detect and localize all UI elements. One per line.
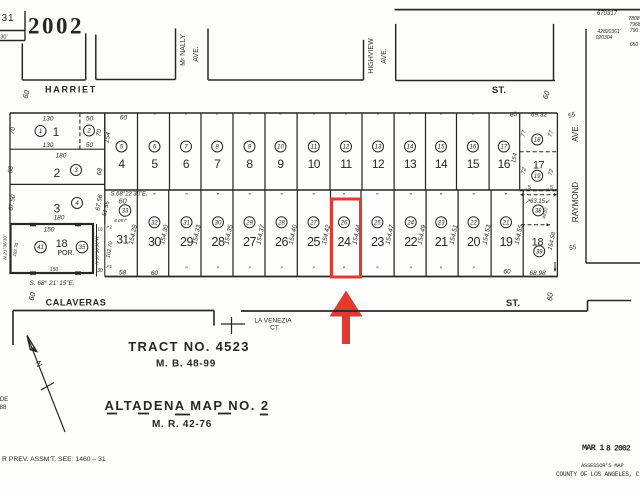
svg-text:77: 77: [521, 129, 529, 138]
svg-text:”: ”: [410, 267, 413, 274]
svg-text:”: ”: [280, 267, 283, 274]
svg-text:9: 9: [248, 145, 252, 151]
svg-text:29: 29: [245, 220, 253, 226]
svg-text:R PREV. ASSM’T. SEE: 1460 –: R PREV. ASSM’T. SEE: 1460 – 31: [2, 456, 106, 463]
svg-text:18: 18: [534, 138, 541, 144]
svg-text:55: 55: [569, 244, 578, 252]
svg-text:↗2: ↗2: [106, 225, 113, 230]
svg-text:58: 58: [119, 270, 127, 277]
svg-text:88: 88: [0, 405, 7, 411]
svg-text:15: 15: [467, 157, 480, 171]
svg-text:S.68°22’30”E.: S.68°22’30”E.: [110, 191, 147, 197]
svg-text:CT.: CT.: [270, 325, 280, 332]
svg-text:”: ”: [217, 267, 220, 274]
svg-text:33: 33: [122, 209, 129, 215]
svg-text:21: 21: [435, 235, 448, 249]
svg-text:”: ”: [440, 113, 443, 120]
svg-text:”: ”: [409, 113, 412, 120]
svg-text:30’: 30’: [0, 35, 7, 41]
svg-text:69.32: 69.32: [531, 112, 548, 119]
svg-text:13: 13: [375, 145, 382, 151]
svg-text:19: 19: [534, 174, 541, 180]
svg-text:180: 180: [56, 153, 67, 160]
svg-text:”: ”: [472, 267, 475, 274]
svg-text:POR.: POR.: [57, 250, 74, 257]
svg-text:7: 7: [184, 145, 188, 151]
svg-text:16: 16: [470, 145, 477, 151]
svg-text:60: 60: [118, 197, 127, 206]
svg-text:39: 39: [536, 249, 543, 255]
svg-text:8.05’/”: 8.05’/”: [114, 218, 127, 223]
svg-text:26: 26: [275, 235, 288, 249]
svg-text:154: 154: [104, 131, 113, 143]
svg-text:9: 9: [277, 157, 284, 171]
svg-text:28: 28: [277, 220, 285, 226]
svg-text:RAYMOND: RAYMOND: [571, 182, 580, 223]
svg-text:”: ”: [248, 113, 251, 120]
svg-text:21: 21: [502, 220, 510, 226]
svg-text:1: 1: [53, 125, 60, 139]
svg-text:60: 60: [120, 115, 128, 122]
svg-text:N.10°36’30”W.: N.10°36’30”W.: [95, 235, 100, 264]
svg-text:72: 72: [521, 167, 529, 176]
svg-text:60: 60: [503, 269, 511, 276]
svg-text:DE: DE: [0, 397, 8, 403]
svg-text:60: 60: [151, 270, 159, 277]
svg-text:”: ”: [312, 193, 315, 200]
svg-text:22: 22: [469, 220, 477, 226]
svg-text:130: 130: [43, 142, 54, 149]
svg-text:48.67: 48.67: [541, 207, 549, 220]
svg-text:3: 3: [74, 168, 78, 174]
svg-text:77: 77: [548, 129, 556, 138]
svg-text:20: 20: [467, 235, 480, 249]
svg-text:27: 27: [243, 235, 256, 249]
svg-text:31: 31: [116, 233, 129, 247]
svg-text:60: 60: [509, 111, 518, 119]
svg-text:”: ”: [343, 267, 346, 274]
svg-text:”: ”: [472, 193, 475, 200]
svg-text:”: ”: [280, 193, 283, 200]
svg-text:N: N: [33, 359, 44, 369]
svg-text:”: ”: [377, 113, 380, 120]
svg-text:8 2002: 8 2002: [606, 445, 631, 454]
svg-text:60: 60: [27, 290, 38, 301]
svg-text:AVE.: AVE.: [571, 124, 580, 142]
svg-text:”: ”: [345, 113, 348, 120]
svg-text:7: 7: [214, 157, 221, 171]
svg-text:102.70: 102.70: [106, 240, 115, 259]
svg-text:”: ”: [217, 193, 220, 200]
svg-text:4: 4: [75, 201, 79, 207]
svg-text:6: 6: [153, 145, 157, 151]
svg-text:↗2: ↗2: [106, 264, 113, 269]
svg-text:”: ”: [248, 267, 251, 274]
svg-text:”: ”: [153, 193, 156, 200]
svg-text:”: ”: [153, 113, 156, 120]
svg-text:8: 8: [216, 145, 220, 151]
svg-text:”: ”: [472, 113, 475, 120]
svg-text:68: 68: [7, 165, 15, 174]
svg-text:MAR 1: MAR 1: [582, 443, 604, 453]
svg-text:HIGHVIEW: HIGHVIEW: [368, 38, 375, 74]
svg-text:154: 154: [511, 152, 519, 164]
svg-text:020304: 020304: [596, 35, 613, 41]
svg-text:180: 180: [54, 215, 65, 222]
svg-text:14: 14: [407, 145, 414, 151]
svg-text:51.56: 51.56: [102, 200, 111, 217]
svg-text:ST.: ST.: [492, 85, 506, 96]
svg-text:HARRIET: HARRIET: [45, 85, 97, 95]
svg-text:”: ”: [312, 267, 315, 274]
svg-text:”: ”: [505, 193, 508, 200]
svg-text:ASSESSOR’S MAP: ASSESSOR’S MAP: [581, 463, 624, 469]
svg-text:12: 12: [372, 157, 385, 171]
svg-text:50: 50: [86, 142, 94, 149]
svg-text:10: 10: [97, 227, 103, 232]
svg-text:”: ”: [410, 193, 413, 200]
svg-text:16: 16: [498, 157, 511, 171]
svg-text:60: 60: [21, 88, 32, 99]
svg-text:TRACT NO. 4523: TRACT NO. 4523: [128, 339, 250, 354]
svg-text:17: 17: [500, 145, 507, 151]
svg-text:LA VENEZIA: LA VENEZIA: [254, 318, 292, 325]
svg-text:”: ”: [279, 113, 282, 120]
svg-text:150: 150: [50, 267, 59, 273]
svg-text:19: 19: [500, 235, 513, 249]
svg-text:55: 55: [567, 111, 576, 120]
svg-text:AVE.: AVE.: [381, 48, 388, 63]
svg-text:670317: 670317: [597, 11, 618, 17]
svg-text:24: 24: [338, 235, 351, 249]
svg-text:68.98: 68.98: [529, 270, 546, 277]
svg-text:”: ”: [185, 193, 188, 200]
svg-text:→5: →5: [545, 185, 553, 191]
svg-text:15: 15: [438, 145, 445, 151]
svg-text:25: 25: [307, 235, 320, 249]
svg-text:”: ”: [185, 267, 188, 274]
svg-text:2002: 2002: [28, 14, 84, 39]
svg-text:60: 60: [540, 89, 552, 101]
svg-text:23: 23: [371, 235, 384, 249]
svg-text:154.58: 154.58: [548, 231, 558, 251]
svg-text:27: 27: [309, 220, 317, 226]
svg-text:M. B. 48-99: M. B. 48-99: [156, 359, 216, 370]
svg-text:60: 60: [545, 291, 555, 301]
svg-text:32: 32: [151, 220, 158, 226]
svg-text:8: 8: [246, 157, 253, 171]
svg-text:35: 35: [79, 245, 86, 251]
svg-text:ST.: ST.: [506, 298, 520, 309]
svg-text:”: ”: [248, 193, 251, 200]
svg-text:”: ”: [313, 113, 316, 120]
svg-text:182.70: 182.70: [12, 242, 19, 257]
svg-text:2: 2: [54, 166, 61, 180]
svg-text:13: 13: [404, 157, 417, 171]
svg-text:41: 41: [37, 245, 44, 251]
svg-text:5: 5: [151, 157, 158, 171]
svg-text:1: 1: [39, 129, 42, 135]
svg-text:AVE.: AVE.: [193, 46, 200, 61]
svg-text:3: 3: [54, 202, 61, 216]
svg-text:11: 11: [340, 157, 352, 171]
svg-text:4: 4: [118, 157, 125, 171]
svg-text:M. R. 42-76: M. R. 42-76: [152, 419, 212, 430]
svg-text:30: 30: [215, 220, 222, 226]
svg-text:25: 25: [373, 220, 381, 226]
svg-text:5: 5: [120, 145, 124, 151]
svg-text:→5: →5: [523, 185, 531, 191]
svg-text:”: ”: [440, 193, 443, 200]
svg-text:10: 10: [308, 157, 321, 171]
svg-text:CALAVERAS: CALAVERAS: [46, 298, 107, 308]
svg-text:18: 18: [56, 238, 68, 250]
svg-text:12: 12: [343, 145, 350, 151]
svg-text:ALTADENA MAP NO. 2: ALTADENA MAP NO. 2: [104, 398, 269, 413]
svg-text:”: ”: [376, 267, 379, 274]
svg-text:50: 50: [86, 116, 94, 123]
svg-text:31: 31: [183, 220, 190, 226]
svg-text:650: 650: [630, 42, 639, 48]
svg-text:↗63.15↙: ↗63.15↙: [525, 199, 551, 205]
svg-text:72: 72: [548, 168, 556, 177]
svg-text:38: 38: [535, 209, 542, 215]
svg-text:N.21°36’30”: N.21°36’30”: [3, 234, 9, 260]
svg-text:10: 10: [277, 145, 284, 151]
svg-text:”: ”: [185, 113, 188, 120]
svg-text:”: ”: [440, 267, 443, 274]
svg-text:790: 790: [630, 28, 639, 34]
svg-text:”: ”: [376, 193, 379, 200]
svg-text:Mc NALLY: Mc NALLY: [180, 34, 188, 66]
svg-text:23: 23: [437, 220, 445, 226]
svg-text:70: 70: [9, 126, 17, 135]
svg-text:”: ”: [216, 113, 219, 120]
svg-text:130: 130: [43, 116, 54, 123]
svg-text:30: 30: [97, 268, 103, 274]
svg-text:150: 150: [44, 227, 55, 234]
svg-text:S. 68° 21’ 15”E.: S. 68° 21’ 15”E.: [29, 279, 74, 287]
svg-text:22: 22: [404, 235, 417, 249]
svg-text:24: 24: [406, 220, 414, 226]
svg-text:11: 11: [311, 145, 317, 151]
svg-text:2: 2: [86, 129, 91, 135]
svg-text:68: 68: [96, 167, 104, 176]
svg-text:31: 31: [1, 13, 14, 24]
svg-text:67.50: 67.50: [8, 194, 18, 212]
svg-text:14: 14: [435, 157, 448, 171]
svg-text:COUNTY OF LOS ANGELES, C: COUNTY OF LOS ANGELES, C: [556, 471, 640, 478]
svg-text:17: 17: [533, 160, 545, 172]
svg-text:26: 26: [340, 220, 348, 226]
svg-text:70: 70: [95, 128, 103, 137]
svg-text:6: 6: [183, 157, 190, 171]
